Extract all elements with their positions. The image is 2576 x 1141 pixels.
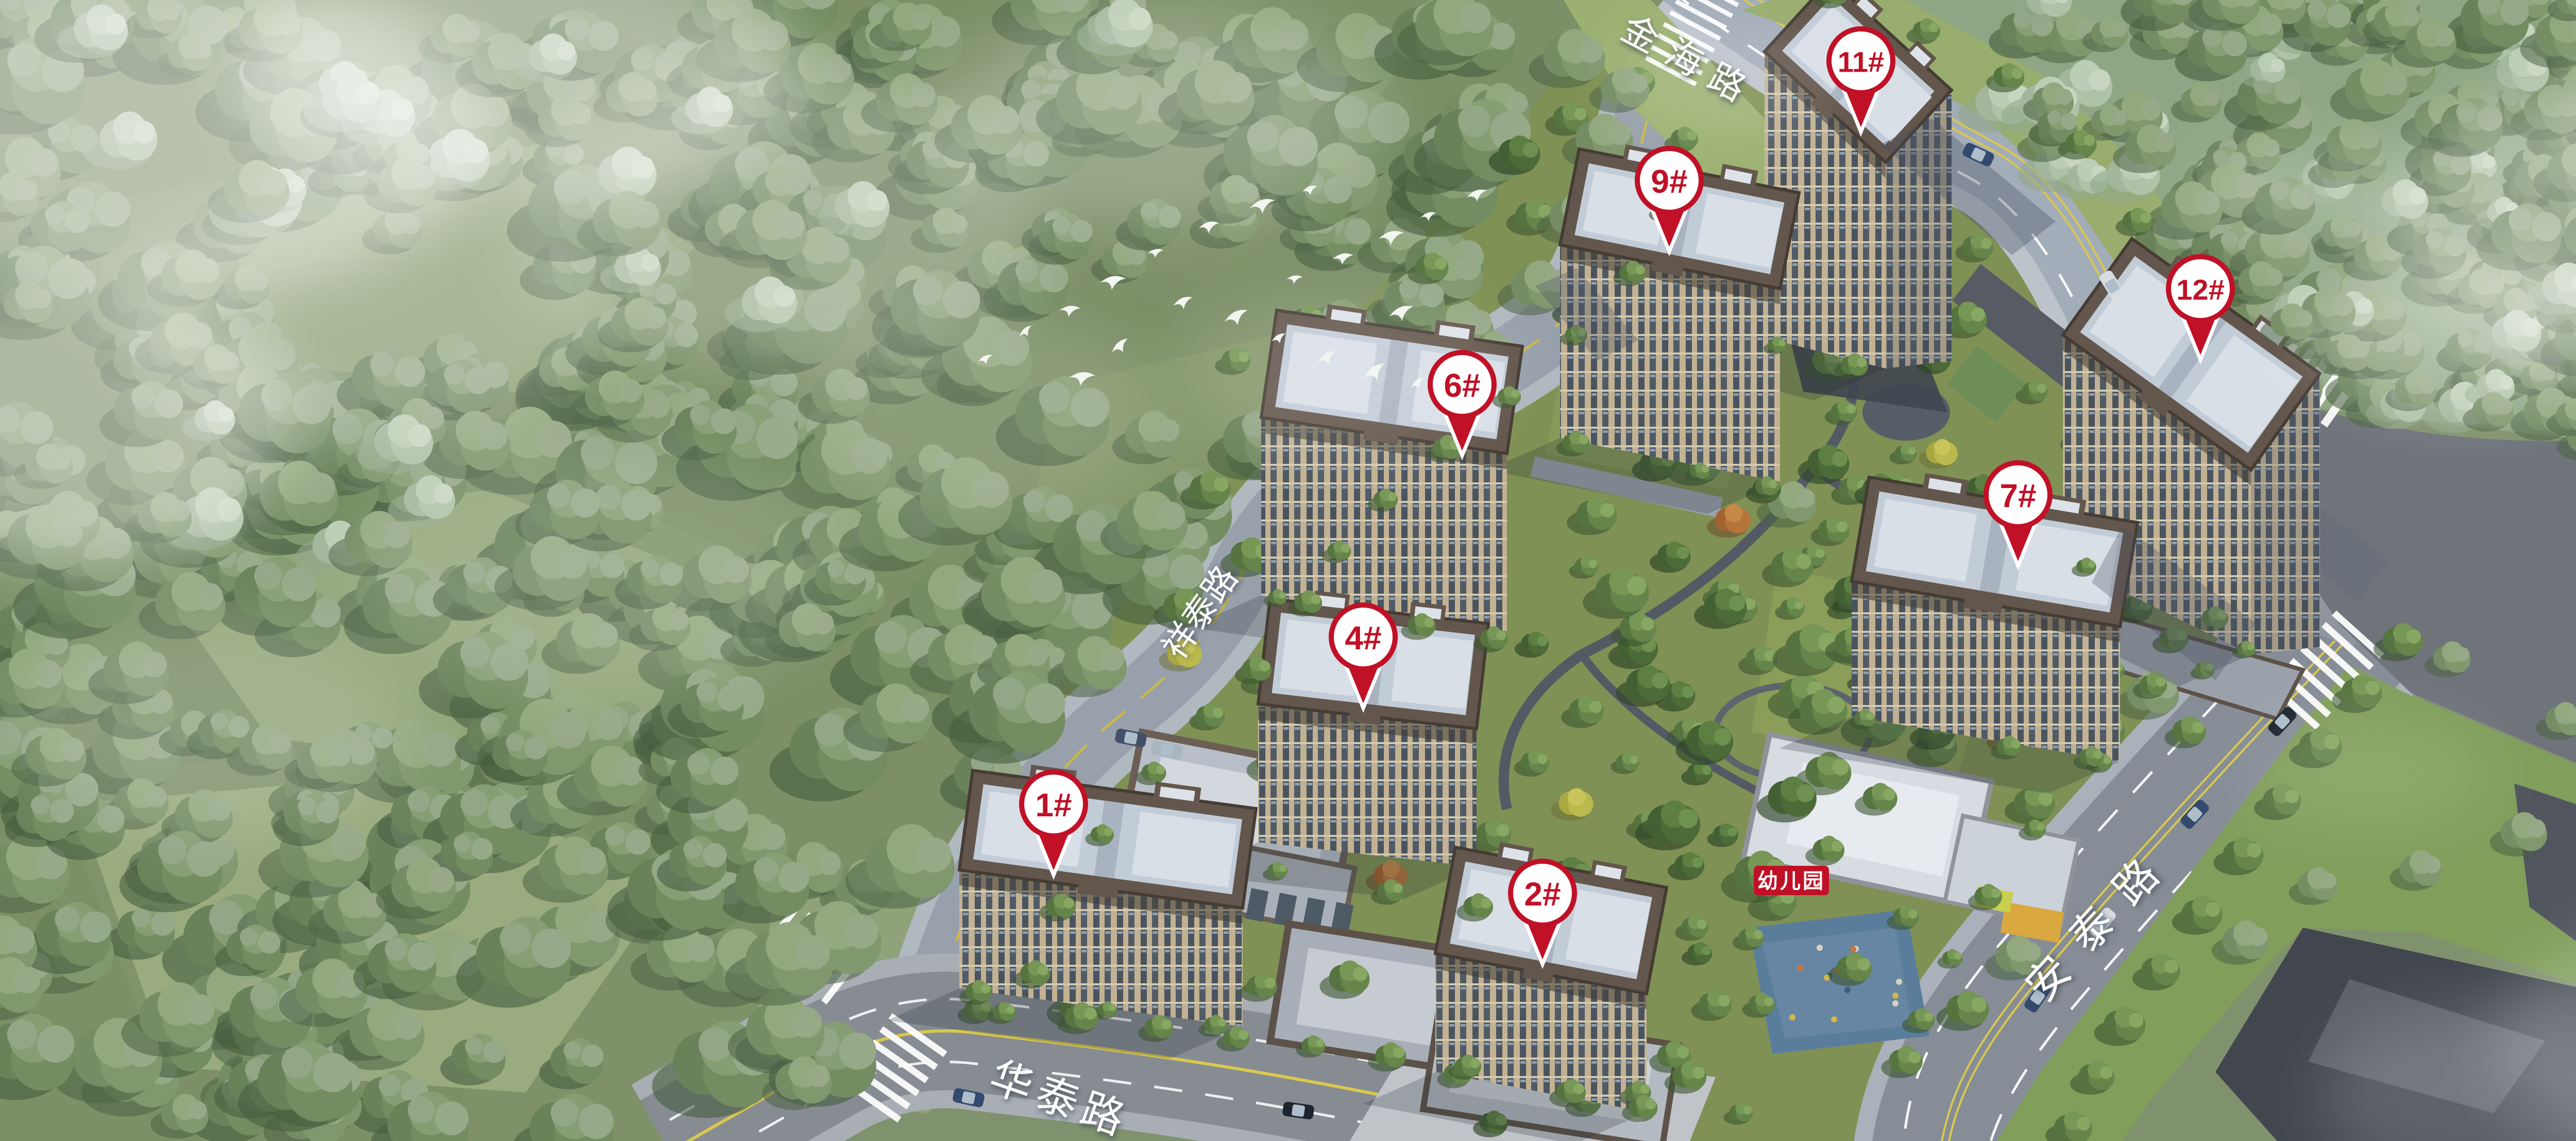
svg-text:7#: 7# [1999,477,2036,514]
svg-text:6#: 6# [1444,367,1480,404]
svg-text:11#: 11# [1838,46,1884,78]
svg-text:9#: 9# [1651,163,1687,200]
svg-text:幼儿园: 幼儿园 [1757,870,1825,893]
svg-text:4#: 4# [1345,619,1381,657]
svg-text:12#: 12# [2176,274,2224,306]
svg-text:1#: 1# [1035,786,1072,824]
svg-text:2#: 2# [1524,876,1561,913]
